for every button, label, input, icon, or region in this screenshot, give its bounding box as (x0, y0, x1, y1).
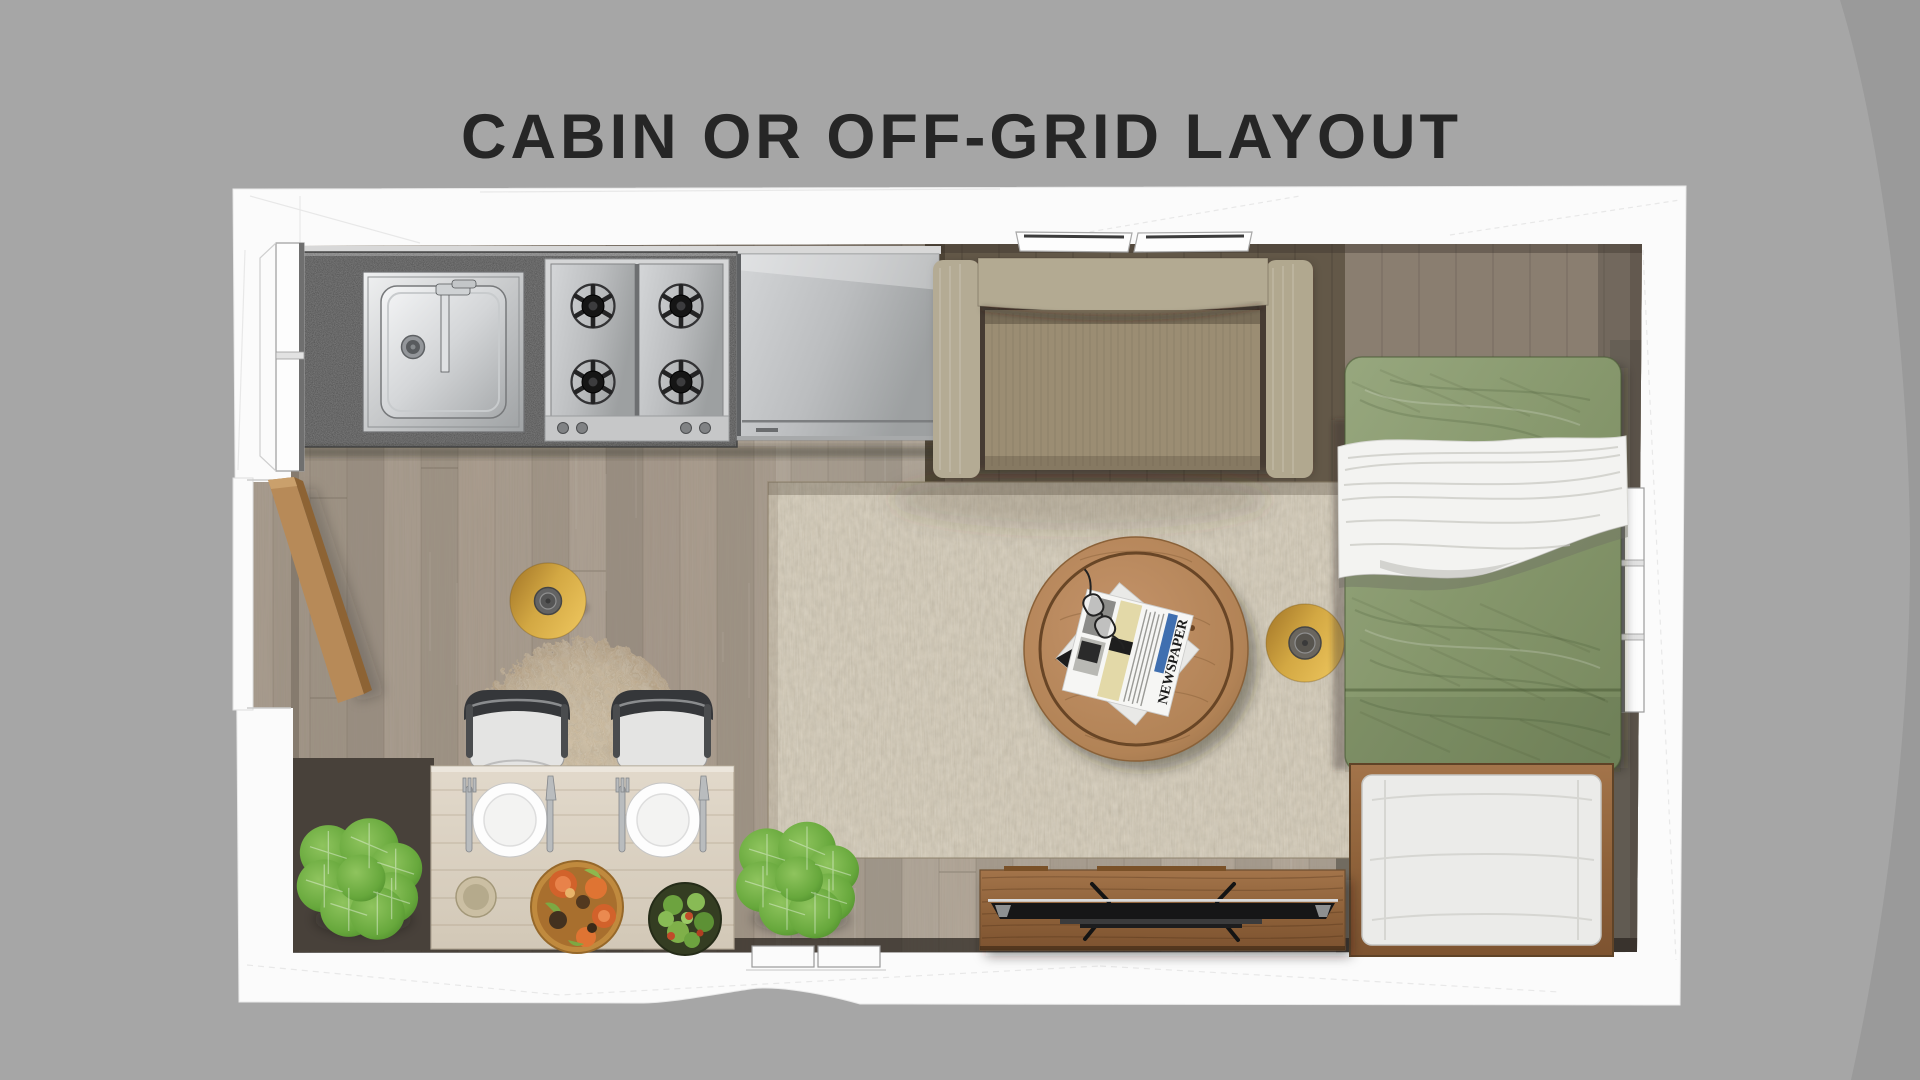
svg-text:CABIN OR OFF-GRID LAYOUT: CABIN OR OFF-GRID LAYOUT (461, 102, 1458, 172)
